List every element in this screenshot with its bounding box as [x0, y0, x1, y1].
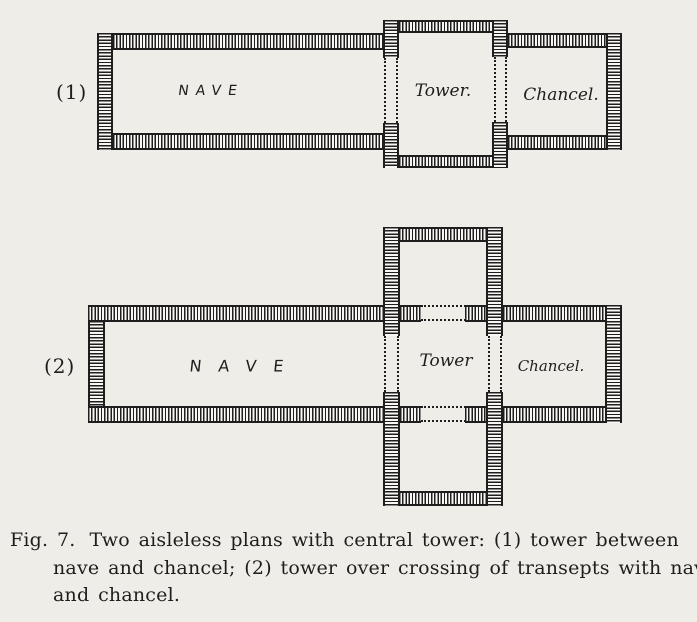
plan-2-south-transept-end-wall [383, 491, 503, 506]
plan-2-transept-west-wall-south [383, 392, 400, 506]
caption-line-3: and chancel. [10, 582, 694, 610]
plan-1-chancel-label: Chancel. [523, 85, 598, 105]
plan-2-transept-west-wall-north [383, 227, 400, 336]
plan-2-west-arch-dotted-inner [397, 336, 399, 392]
plan-2-south-arch-dotted-inner [421, 406, 466, 408]
plan-1-tower-east-pier-north [492, 20, 508, 57]
plan-2-index-label: (2) [44, 354, 75, 378]
plan-2-chancel-label: Chancel. [518, 357, 585, 375]
plan-2-nave-label: NAVE [189, 357, 302, 376]
plan-2-crossing-pier-southwest [400, 406, 421, 423]
plan-1-nave-arch-dotted-west [384, 58, 386, 123]
plan-2-chancel-east-wall [605, 305, 622, 423]
plan-1-nave-label: NAVE [177, 83, 245, 99]
plan-2-crossing-pier-southeast [465, 406, 486, 423]
plan-1-tower-east-pier-south [492, 122, 508, 168]
plan-2-west-arch-dotted-outer [384, 336, 386, 392]
plan-1-tower-west-pier-north [383, 20, 399, 58]
plan-2-south-arch-dotted-outer [421, 420, 466, 422]
book-figure-page: (1) NAVE Tower. Chancel. (2) [0, 0, 697, 622]
plan-1-chancel-arch-dotted-east [505, 57, 507, 122]
plan-1-chancel-arch-dotted-west [494, 57, 496, 122]
plan-2-east-arch-dotted-inner [488, 336, 490, 392]
plan-2-north-arch-dotted-inner [421, 319, 466, 321]
plan-1-tower-north-wall [383, 20, 508, 33]
caption-line-2: nave and chancel; (2) tower over crossin… [10, 555, 694, 583]
plan-1-nave-south-wall [97, 133, 383, 150]
caption-line-1: Fig. 7.Two aisleless plans with central … [10, 527, 694, 555]
plan-2-east-arch-dotted-outer [500, 336, 502, 392]
plan-1-chancel-east-wall [606, 33, 622, 150]
plan-2-tower-label: Tower [420, 351, 473, 371]
plan-2-crossing-pier-northwest [400, 305, 421, 322]
figure-caption: Fig. 7.Two aisleless plans with central … [10, 527, 694, 610]
plan-2-north-transept-end-wall [383, 227, 503, 242]
plan-1-nave-arch-dotted-east [396, 58, 398, 123]
plan-2-north-arch-dotted-outer [421, 305, 466, 307]
plan-1-chancel-north-wall [508, 33, 622, 48]
plan-1-chancel-south-wall [508, 135, 622, 150]
plan-1-nave-north-wall [97, 33, 383, 50]
plan-1-tower-west-pier-south [383, 123, 399, 168]
figure-number: Fig. 7. [10, 529, 76, 551]
plan-2-transept-east-wall-north [486, 227, 503, 336]
plan-1-tower-label: Tower. [415, 81, 472, 101]
plan-1-index-label: (1) [56, 80, 87, 104]
plan-2-crossing-pier-northeast [465, 305, 486, 322]
plan-1-nave-west-wall [97, 33, 113, 150]
plan-2-transept-east-wall-south [486, 392, 503, 506]
plan-1-tower-south-wall [383, 155, 508, 168]
plan-2-nave-south-wall [88, 406, 383, 423]
caption-line-1-text: Two aisleless plans with central tower: … [90, 529, 679, 551]
plan-2-nave-north-wall [88, 305, 383, 322]
